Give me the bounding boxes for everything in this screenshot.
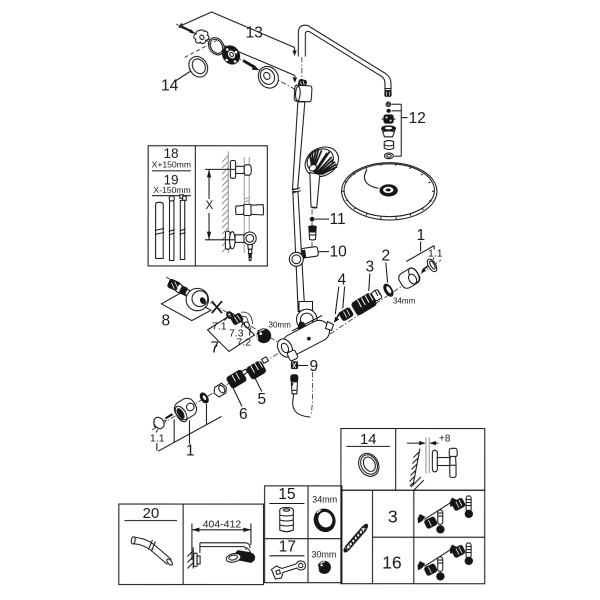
svg-text:30mm: 30mm [311, 549, 336, 559]
svg-text:14: 14 [161, 77, 179, 94]
svg-text:6: 6 [239, 406, 248, 423]
svg-text:15: 15 [278, 486, 295, 503]
svg-text:9: 9 [309, 358, 318, 375]
svg-text:10: 10 [330, 244, 348, 261]
svg-text:5: 5 [257, 391, 266, 408]
svg-text:3: 3 [388, 507, 398, 527]
svg-text:7.2: 7.2 [236, 336, 251, 348]
svg-text:3: 3 [366, 259, 375, 276]
svg-text:12: 12 [409, 110, 426, 127]
svg-text:34mm: 34mm [393, 297, 416, 306]
svg-text:14: 14 [360, 431, 377, 448]
svg-text:30mm: 30mm [268, 320, 291, 329]
svg-text:11: 11 [330, 211, 346, 228]
svg-text:16: 16 [382, 552, 401, 572]
svg-text:7.1: 7.1 [212, 320, 227, 332]
svg-text:+8: +8 [439, 434, 451, 445]
svg-text:X+150mm: X+150mm [152, 159, 191, 169]
svg-text:2: 2 [382, 248, 391, 265]
svg-text:34mm: 34mm [312, 495, 337, 505]
svg-text:1: 1 [186, 442, 195, 459]
svg-text:1.1: 1.1 [150, 432, 165, 444]
svg-text:20: 20 [143, 505, 160, 522]
svg-text:7: 7 [210, 339, 219, 356]
svg-text:4: 4 [338, 272, 347, 289]
svg-text:17: 17 [279, 538, 296, 555]
svg-text:404-412: 404-412 [203, 518, 242, 530]
svg-text:1: 1 [417, 227, 426, 244]
svg-text:X: X [206, 200, 214, 212]
svg-text:13: 13 [246, 24, 263, 41]
svg-text:X-150mm: X-150mm [153, 185, 190, 195]
svg-text:1.1: 1.1 [428, 248, 443, 260]
svg-text:8: 8 [161, 312, 170, 329]
